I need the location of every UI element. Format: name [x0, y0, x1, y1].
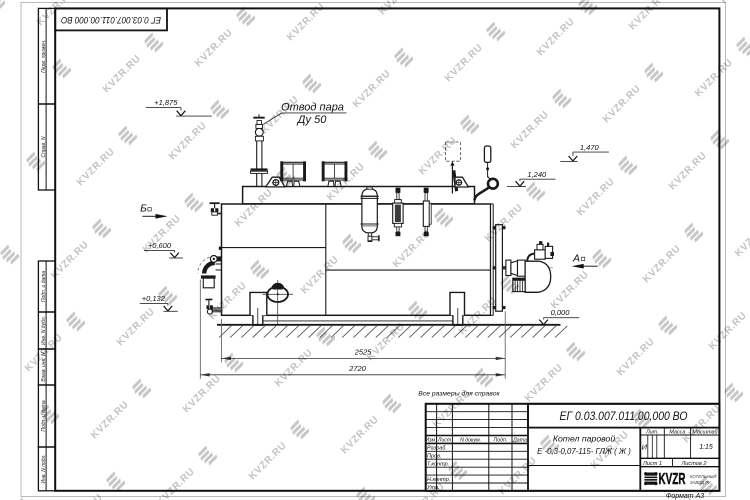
svg-text:Ду 50: Ду 50 — [296, 114, 328, 126]
svg-text:+1,875: +1,875 — [154, 98, 178, 107]
svg-text:1,240: 1,240 — [527, 170, 547, 179]
svg-text:Лист: Лист — [437, 437, 452, 443]
svg-text:Формат А3: Формат А3 — [666, 493, 704, 500]
svg-text:N докум.: N докум. — [460, 437, 481, 443]
svg-text:Перв. примен.: Перв. примен. — [41, 40, 47, 73]
svg-text:КОТЕЛЬНЫЙ: КОТЕЛЬНЫЙ — [690, 474, 716, 479]
svg-text:1:15: 1:15 — [699, 444, 713, 451]
svg-text:Справ. N: Справ. N — [41, 136, 47, 157]
svg-text:ЕГ 0.03.007.011.00.000 ВО: ЕГ 0.03.007.011.00.000 ВО — [61, 15, 161, 25]
svg-text:Листов 2: Листов 2 — [680, 461, 707, 467]
svg-text:1,470: 1,470 — [580, 143, 600, 152]
svg-text:Изм.: Изм. — [425, 437, 436, 443]
svg-text:Подп. и дата: Подп. и дата — [41, 271, 47, 303]
svg-text:Пров.: Пров. — [427, 454, 442, 460]
svg-text:KVZR: KVZR — [659, 471, 686, 488]
svg-text:Инв. N дубл.: Инв. N дубл. — [41, 316, 47, 345]
svg-text:ЕГ 0.03.007.011.00.000 ВО: ЕГ 0.03.007.011.00.000 ВО — [560, 411, 688, 423]
svg-text:2720: 2720 — [348, 364, 367, 373]
svg-text:Подп.: Подп. — [493, 437, 507, 443]
svg-text:А: А — [572, 252, 580, 264]
svg-text:И: И — [642, 443, 648, 452]
svg-text:Лист 1: Лист 1 — [642, 461, 662, 467]
svg-text:0,000: 0,000 — [551, 308, 571, 317]
svg-text:Лит.: Лит. — [645, 429, 659, 435]
svg-text:Б: Б — [140, 202, 147, 214]
svg-text:Разраб.: Разраб. — [427, 446, 447, 452]
svg-text:Т.контр.: Т.контр. — [427, 461, 449, 467]
svg-text:Дата: Дата — [512, 437, 527, 443]
svg-text:Инв. N подл.: Инв. N подл. — [41, 454, 47, 483]
svg-text:Котел паровой: Котел паровой — [553, 434, 615, 444]
